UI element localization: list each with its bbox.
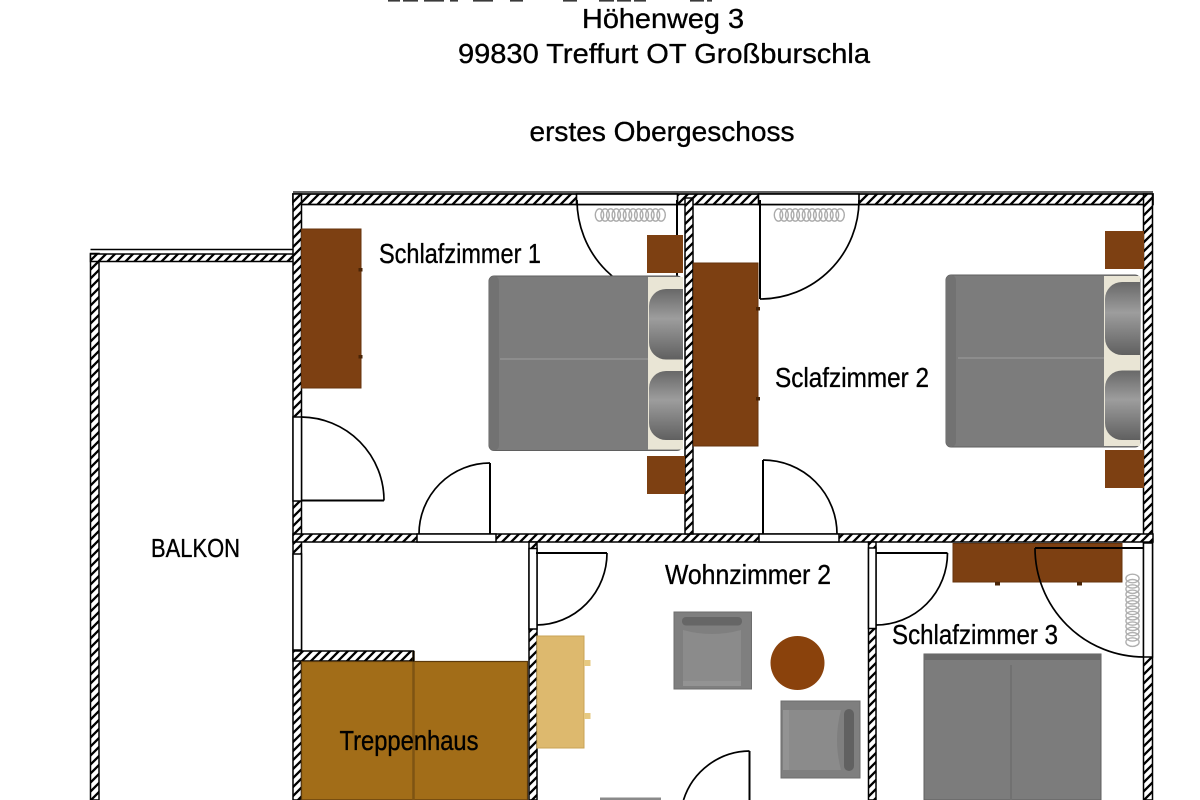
svg-text:99830 Treffurt OT Großburschla: 99830 Treffurt OT Großburschla — [458, 38, 870, 69]
svg-text:Schlafzimmer 3: Schlafzimmer 3 — [892, 619, 1058, 650]
svg-text:Treppenhaus: Treppenhaus — [340, 725, 479, 756]
svg-text:erstes Obergeschoss: erstes Obergeschoss — [530, 116, 795, 147]
svg-text:Schlafzimmer 1: Schlafzimmer 1 — [379, 238, 541, 269]
svg-text:Sclafzimmer 2: Sclafzimmer 2 — [775, 362, 929, 393]
svg-text:BALKON: BALKON — [151, 533, 240, 563]
svg-text:Wohnzimmer 2: Wohnzimmer 2 — [665, 559, 831, 590]
svg-text:Höhenweg 3: Höhenweg 3 — [582, 3, 744, 34]
